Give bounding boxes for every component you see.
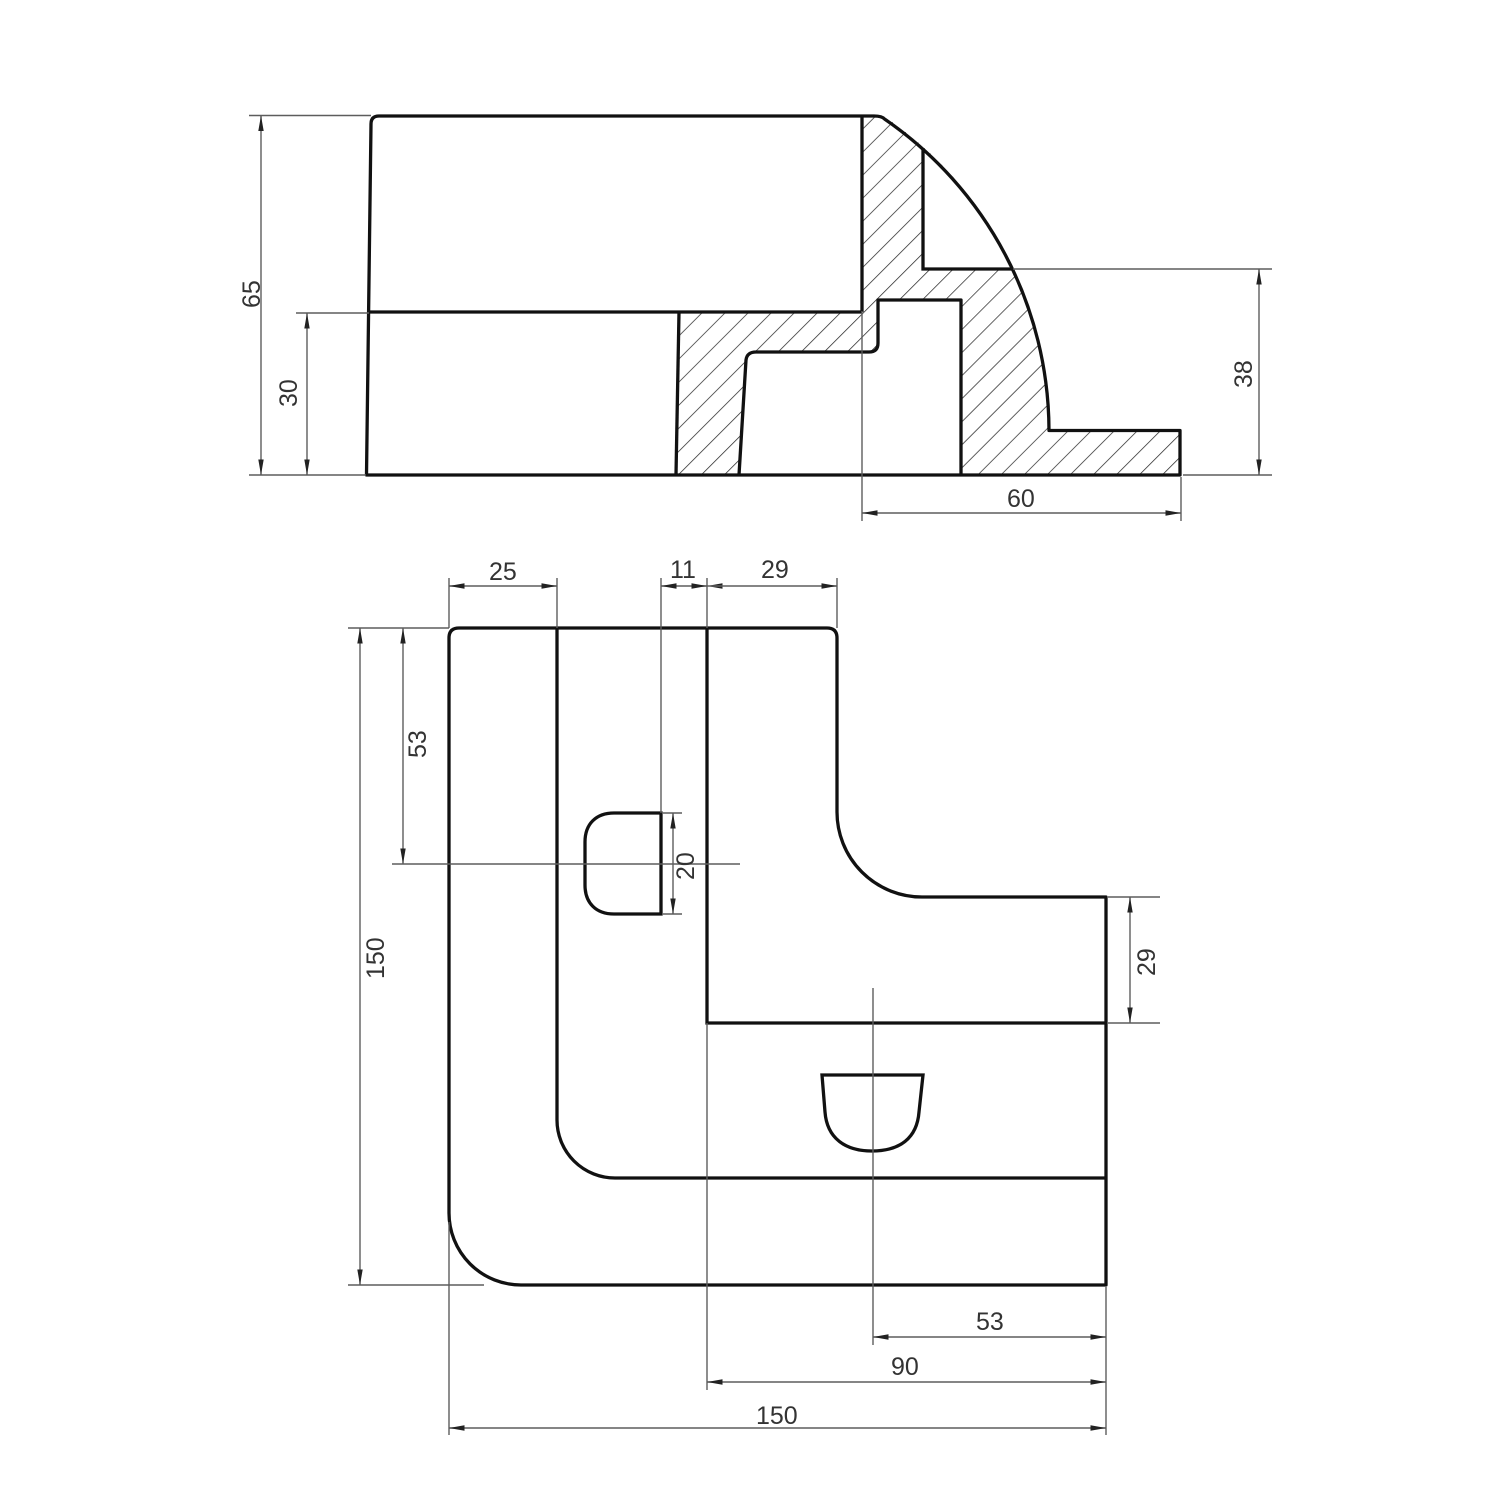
svg-text:11: 11 [670, 556, 696, 584]
svg-text:25: 25 [489, 558, 517, 586]
svg-text:53: 53 [976, 1308, 1004, 1336]
svg-text:38: 38 [1230, 360, 1258, 388]
svg-text:150: 150 [362, 937, 390, 979]
svg-text:30: 30 [275, 379, 303, 407]
svg-text:29: 29 [1133, 948, 1161, 976]
svg-text:65: 65 [238, 280, 266, 308]
svg-text:150: 150 [756, 1402, 798, 1430]
svg-text:53: 53 [404, 730, 432, 758]
svg-text:20: 20 [672, 852, 700, 880]
svg-text:90: 90 [891, 1353, 919, 1381]
svg-text:60: 60 [1007, 485, 1035, 513]
svg-text:29: 29 [761, 556, 789, 584]
